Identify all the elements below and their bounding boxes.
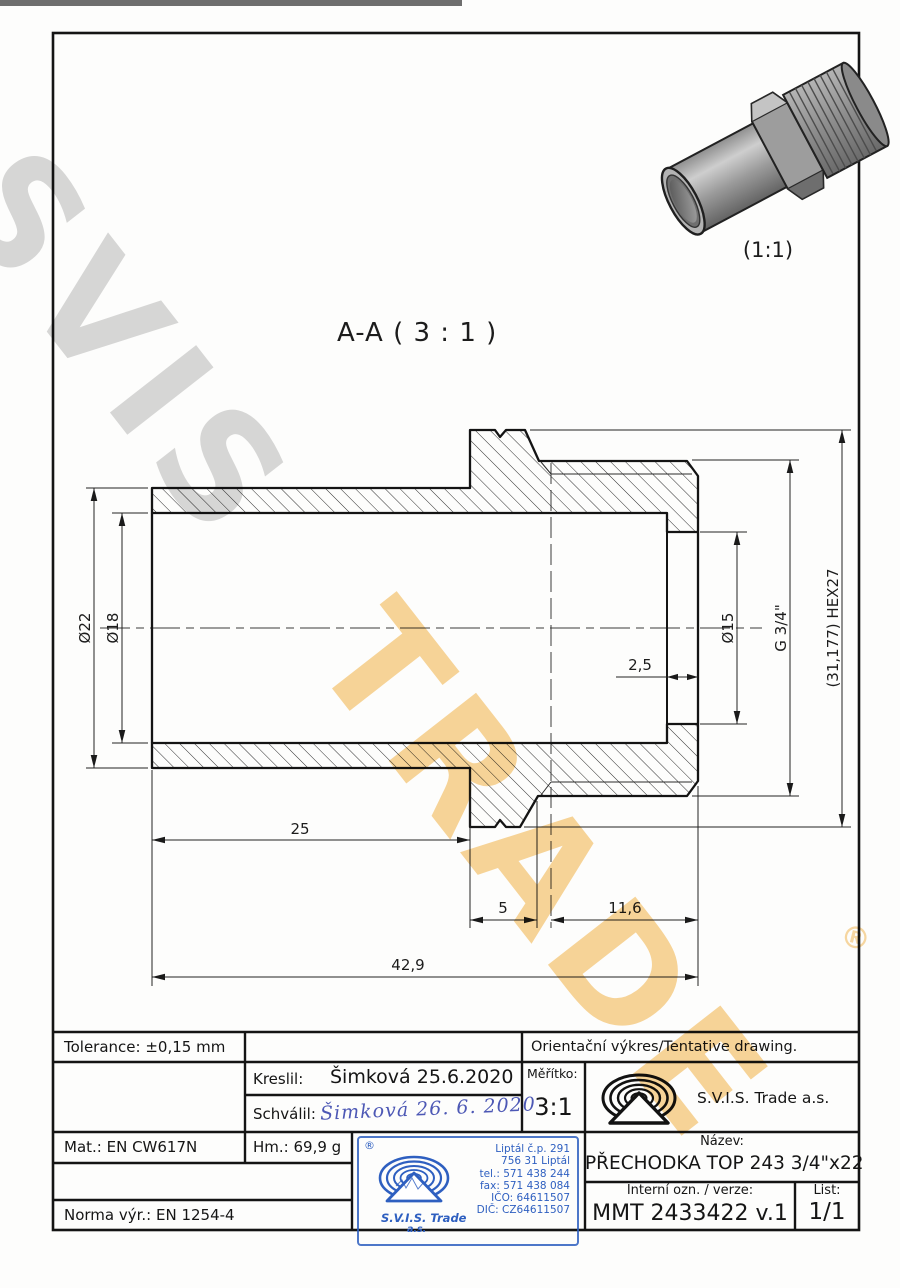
drawing-sheet: Ø22 Ø18 Ø15 G 3/4" (31,177) HEX27 25 5 1… [0,0,900,1288]
schvalil-label: Schválil: [253,1106,316,1123]
section-material-top [152,430,698,532]
norma-value: Norma výr.: EN 1254-4 [64,1207,235,1224]
section-title: A-A ( 3 : 1 ) [337,318,497,348]
dim-thread-label: G 3/4" [772,604,790,651]
dim-hex-label: (31,177) HEX27 [824,568,842,687]
stamp-registered-mark: ® [364,1140,375,1152]
stamp-address-line: DIČ: CZ64611507 [477,1204,570,1216]
dim-dia15-label: Ø15 [719,613,737,644]
stamp-address-line: fax: 571 438 084 [477,1180,570,1192]
kreslil-label: Kreslil: [253,1071,303,1088]
dim-5-label: 5 [498,899,508,917]
list-value: 1/1 [795,1200,859,1225]
interni-label: Interní ozn. / verze: [585,1184,795,1198]
dim-25-label: 25 [290,820,309,838]
interni-value: MMT 2433422 v.1 [585,1202,795,1226]
tolerance-note: Tolerance: ±0,15 mm [64,1039,225,1056]
dim-429-label: 42,9 [391,956,424,974]
stamp-company-line2: a.s. [407,1225,426,1235]
company-logo [603,1075,675,1123]
section-material-bottom [152,724,698,827]
dim-25r-label: 2,5 [628,656,652,674]
stamp-address-line: IČO: 64611507 [477,1192,570,1204]
company-name: S.V.I.S. Trade a.s. [697,1090,829,1107]
meritko-value: 3:1 [522,1094,585,1120]
dimension-labels: Ø22 Ø18 Ø15 G 3/4" (31,177) HEX27 25 5 1… [76,568,842,974]
stamp-company-line1: S.V.I.S. Trade [381,1212,466,1225]
iso-scale-label: (1:1) [743,238,793,262]
list-label: List: [795,1184,859,1198]
iso-view: (1:1) [646,53,899,262]
nazev-label: Název: [585,1135,859,1149]
scan-artifact-strip [0,0,462,6]
company-stamp: ® S.V.I.S. Trade a.s. Liptál č.p. 291 75… [357,1136,579,1246]
dim-dia22-label: Ø22 [76,613,94,644]
section-view [100,430,762,928]
stamp-address-line: 756 31 Liptál [477,1155,570,1167]
dim-dia18-label: Ø18 [104,613,122,644]
kreslil-value: Šimková 25.6.2020 [330,1067,513,1088]
stamp-address: Liptál č.p. 291 756 31 Liptál tel.: 571 … [477,1143,570,1217]
stamp-address-line: tel.: 571 438 244 [477,1168,570,1180]
stamp-address-line: Liptál č.p. 291 [477,1143,570,1155]
dim-116-label: 11,6 [608,899,641,917]
meritko-label: Měřítko: [527,1067,578,1081]
orientacni-note: Orientační výkres/Tentative drawing. [531,1040,797,1056]
nazev-value: PŘECHODKA TOP 243 3/4"x22 [585,1154,859,1174]
material-value: Mat.: EN CW617N [64,1139,197,1156]
weight-value: Hm.: 69,9 g [253,1139,341,1156]
stamp-logo [373,1152,455,1212]
